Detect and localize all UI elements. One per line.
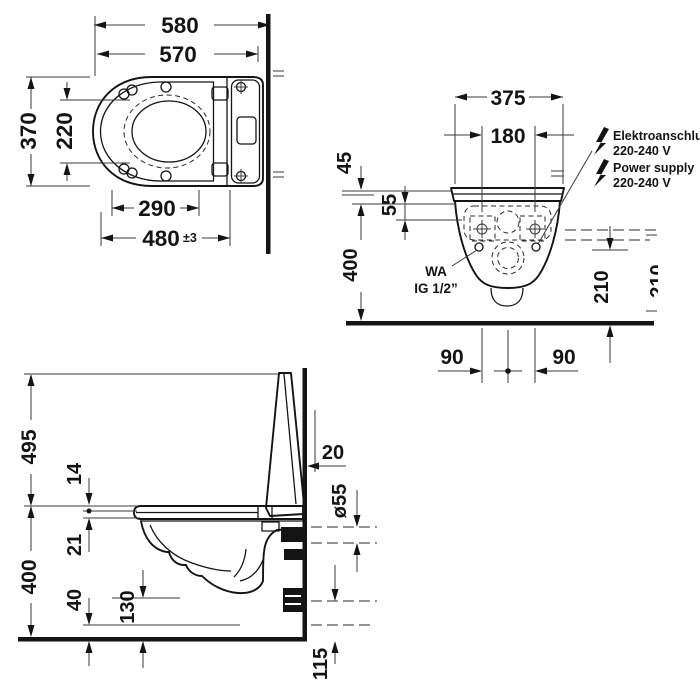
- lightning-icon: [594, 127, 609, 155]
- side-ceramic-profile: [141, 521, 303, 593]
- plan-actuator-unit: [212, 78, 260, 185]
- front-dim-rim-height: 400: [340, 248, 362, 281]
- front-dim-edge-clipped: 210: [646, 232, 700, 318]
- front-dim-connection-height: 210: [591, 270, 613, 303]
- side-view: 495 400 14 21 40 130: [18, 368, 377, 680]
- front-drain-dashed-outer: [492, 242, 524, 274]
- side-dim-bottom-clearance: 40: [64, 589, 86, 611]
- electrical-voltage-de: 220-240 V: [613, 144, 671, 158]
- side-seat: [134, 506, 303, 519]
- floor-section-line-side: [18, 637, 307, 642]
- front-view: WA IG 1/2” Elektroanschluss 220-240 V Po…: [334, 87, 700, 383]
- power-label-en: Power supply: [613, 161, 694, 175]
- side-dim-open-lid-height: 495: [18, 429, 41, 464]
- side-dim-seat-thickness: 21: [64, 534, 86, 556]
- front-upper-port-dashed: [497, 211, 519, 233]
- plan-dim-width: 370: [16, 112, 41, 150]
- front-dim-top-offset: 55: [379, 194, 401, 216]
- plan-dim-ceramic-depth: 570: [159, 42, 197, 67]
- side-dim-bowl-bottom-height: 130: [117, 590, 139, 623]
- side-dimensions-right: 20 ø55 115: [307, 410, 377, 680]
- power-voltage-en: 220-240 V: [613, 176, 671, 190]
- side-dim-seat-gap: 14: [64, 462, 86, 485]
- front-dim-bolt-left: 90: [440, 346, 463, 369]
- electrical-label-de: Elektroanschluss: [613, 129, 700, 143]
- plan-dim-fix-tolerance: ±3: [183, 231, 197, 245]
- plan-view: 580 570 370 220 290 480 ±3: [16, 13, 284, 254]
- front-power-connection-point: [532, 243, 540, 251]
- side-dim-outlet-height: 115: [310, 648, 332, 680]
- water-connection-label-line2: IG 1/2”: [414, 281, 458, 296]
- toilet-technical-drawing: 580 570 370 220 290 480 ±3: [0, 0, 700, 700]
- plan-seat-outline: [101, 82, 214, 181]
- wall-section-line: [266, 14, 271, 254]
- side-dim-rim-height: 400: [18, 559, 41, 594]
- plan-dim-overall-depth: 580: [161, 13, 199, 38]
- wall-equal-marks: [273, 71, 284, 177]
- front-dim-bolt-right: 90: [552, 346, 575, 369]
- front-equal-marks: [551, 171, 564, 176]
- front-dim-width: 375: [490, 87, 525, 110]
- floor-section-line-front: [346, 321, 654, 326]
- plan-bowl-dashed: [124, 95, 210, 168]
- front-fixing-bolts: [473, 220, 544, 238]
- front-toilet-body: [451, 188, 564, 306]
- side-dim-wall-clearance: 20: [322, 442, 344, 464]
- technical-drawing-page: 580 570 370 220 290 480 ±3: [0, 0, 700, 700]
- front-water-connection-point: [475, 243, 483, 251]
- front-drain-dashed-inner: [498, 248, 519, 269]
- front-dim-seat-stack: 45: [334, 152, 356, 174]
- plan-dim-fix-length: 480: [142, 226, 180, 251]
- side-wall-hardware: [262, 522, 303, 612]
- lightning-icon: [594, 159, 609, 187]
- plan-seat-bumpers: [119, 82, 171, 181]
- plan-bowl-opening: [132, 101, 206, 162]
- front-dim-bolt-spacing: 180: [490, 125, 525, 148]
- side-dim-outlet-diameter: ø55: [329, 484, 351, 518]
- drawing-crop-mask: [658, 232, 700, 318]
- plan-dim-bowl-length: 290: [138, 196, 176, 221]
- side-open-lid: [266, 373, 304, 516]
- plan-dim-bowl-width: 220: [52, 112, 77, 150]
- water-connection-label-line1: WA: [425, 264, 447, 279]
